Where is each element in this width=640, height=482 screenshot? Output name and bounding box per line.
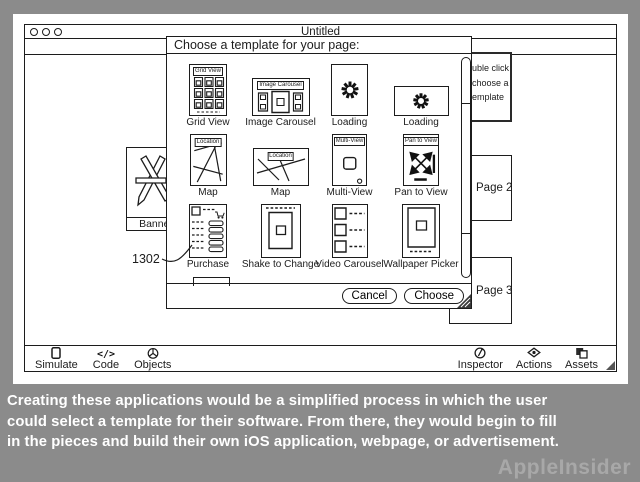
pan-to-view-thumbnail: Pan to View — [403, 134, 439, 186]
grid-view-icon — [192, 76, 225, 114]
caption-line: could select a template for their softwa… — [7, 412, 634, 433]
cancel-button[interactable]: Cancel — [342, 288, 398, 304]
toolbar-simulate-button[interactable]: Simulate — [35, 347, 78, 371]
template-grid-view[interactable]: Grid View — [171, 55, 245, 129]
template-loading-portrait[interactable]: Loading — [316, 55, 383, 129]
template-chooser-dialog: Choose a template for your page: Grid Vi… — [166, 36, 472, 309]
caption-line: in the pieces and build their own iOS ap… — [7, 432, 634, 453]
dialog-resize-grip[interactable] — [457, 294, 471, 308]
wallpaper-frame-icon — [404, 205, 439, 256]
template-purchase[interactable]: Purchase — [171, 199, 245, 271]
template-loading-landscape[interactable]: Loading — [383, 55, 459, 129]
shake-to-change-thumbnail — [261, 204, 301, 258]
toolbar-objects-button[interactable]: Objects — [134, 347, 171, 371]
toolbar-actions-button[interactable]: Actions — [516, 347, 552, 371]
loading-portrait-thumbnail — [331, 64, 368, 116]
video-list-icon — [333, 205, 366, 256]
grid-view-thumbnail: Grid View — [189, 64, 227, 116]
template-shake-to-change[interactable]: Shake to Change — [245, 199, 316, 271]
template-video-carousel[interactable]: Video Carousel — [316, 199, 383, 271]
caption-line: Creating these applications would be a s… — [7, 391, 634, 412]
spinner-icon — [411, 91, 431, 111]
window-bottom-toolbar: Simulate </> Code — [25, 345, 616, 371]
window-resize-grip[interactable] — [606, 361, 615, 370]
spinner-icon — [339, 79, 361, 101]
code-icon: </> — [97, 347, 115, 359]
toolbar-code-button[interactable]: </> Code — [93, 347, 119, 371]
inspector-circle-icon — [474, 347, 486, 359]
scrollbar-divider — [462, 103, 470, 104]
appleinsider-watermark: AppleInsider — [498, 456, 631, 480]
screenshot-area: Untitled Banner Page 2 Page 3 uble click — [13, 14, 628, 384]
choose-button[interactable]: Choose — [404, 288, 464, 304]
image-carousel-thumbnail: Image Carousel — [252, 78, 310, 116]
template-grid: Grid View — [171, 55, 459, 271]
map-landscape-thumbnail: Location — [253, 148, 309, 186]
object-sphere-icon — [147, 347, 159, 359]
toolbar-assets-button[interactable]: Assets — [565, 347, 598, 371]
loading-landscape-thumbnail — [394, 86, 449, 116]
template-wallpaper-picker[interactable]: Wallpaper Picker — [383, 199, 459, 271]
multi-view-thumbnail: Multi-View — [332, 134, 367, 186]
template-pan-to-view[interactable]: Pan to View — [383, 129, 459, 199]
page-2-label: Page 2 — [476, 182, 512, 194]
app-window: Untitled Banner Page 2 Page 3 uble click — [24, 24, 617, 372]
wallpaper-picker-thumbnail — [402, 204, 440, 258]
dialog-button-bar: Cancel Choose — [167, 283, 471, 308]
template-image-carousel[interactable]: Image Carousel Image — [245, 55, 316, 129]
video-carousel-thumbnail — [332, 204, 368, 258]
map-portrait-thumbnail: Location — [190, 134, 227, 186]
pan-arrows-icon — [405, 146, 437, 186]
page-3-label: Page 3 — [476, 285, 512, 297]
dialog-scrollbar[interactable] — [461, 57, 471, 278]
image-carousel-icon — [256, 90, 306, 115]
template-map-portrait[interactable]: Location Map — [171, 129, 245, 199]
device-icon — [51, 347, 61, 359]
actions-diamond-icon — [527, 347, 541, 359]
template-map-landscape[interactable]: Location Map — [245, 129, 316, 199]
caption-band: Creating these applications would be a s… — [0, 384, 640, 482]
multi-view-icon — [334, 146, 365, 186]
dialog-title: Choose a template for your page: — [167, 37, 471, 54]
placeholder-hint-text: uble click choose a emplate — [472, 61, 509, 105]
toolbar-inspector-button[interactable]: Inspector — [458, 347, 503, 371]
purchase-thumbnail — [189, 204, 227, 258]
svg-text:</>: </> — [97, 349, 115, 359]
scrollbar-divider — [462, 233, 470, 234]
template-multi-view[interactable]: Multi-View Multi-View — [316, 129, 383, 199]
shake-frame-icon — [262, 205, 299, 256]
purchase-list-icon — [190, 205, 226, 256]
assets-layers-icon — [575, 347, 588, 359]
